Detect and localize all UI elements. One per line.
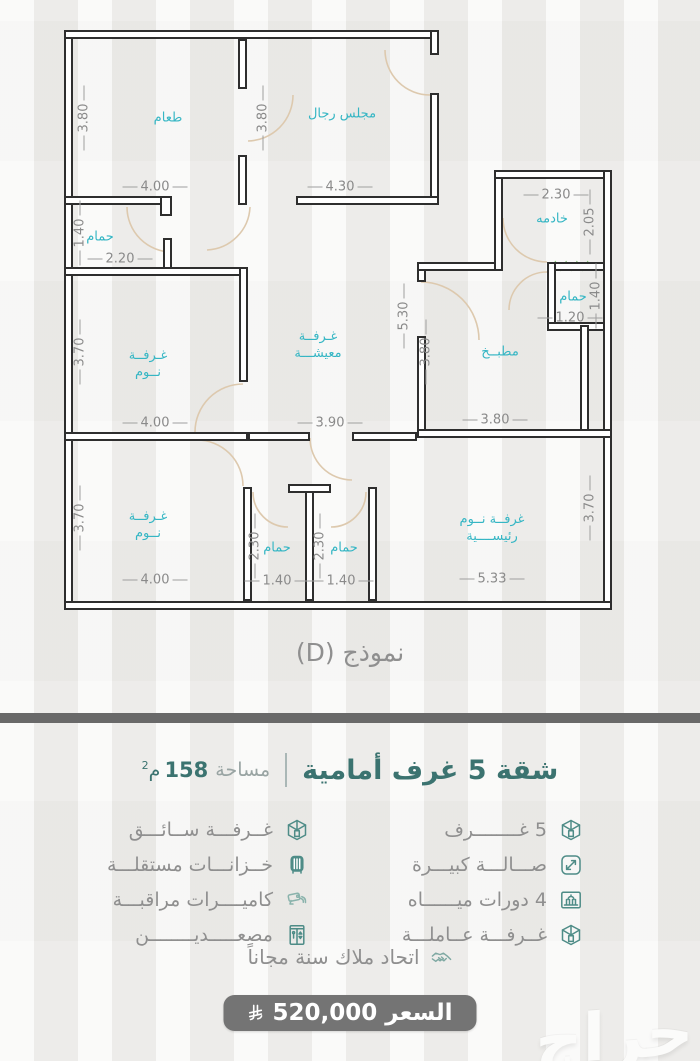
wall [239, 267, 248, 382]
door-arc [310, 438, 352, 480]
wall [64, 30, 439, 39]
tank-icon [285, 853, 309, 877]
door-arc [331, 492, 366, 527]
door-arc [207, 207, 250, 250]
haraj-watermark: حراج [535, 992, 693, 1061]
room-cube-icon [285, 818, 309, 842]
title-separator [285, 753, 287, 787]
wall [603, 170, 612, 610]
room-label: حمام [559, 289, 587, 306]
building-icon [559, 888, 583, 912]
handshake-icon [430, 946, 453, 969]
owners-union-row: اتحاد ملاك سنة مجاناً [0, 945, 700, 969]
price-text: السعر 520,000 [273, 1000, 453, 1026]
listing-title: شقة 5 غرف أمامية [302, 755, 558, 786]
room-label: مطبــخ [481, 344, 519, 361]
room-label: طعام [154, 110, 183, 127]
dimension-label: 3.70 [73, 317, 88, 388]
dimension-label: 5.33 [457, 572, 528, 587]
feature-label: مصعـــــديــــــــن [135, 924, 273, 946]
dimension-label: 5.30 [397, 281, 412, 352]
feature-item: غــرفـــة عــاملـــة [402, 923, 583, 946]
dimension-label: 3.80 [460, 413, 531, 428]
room-label: غـرفــةمعيشـــة [294, 328, 341, 362]
listing-flyer: نموذج (D) طعاممجلس رجالحمامخادمهغـرفــةن… [0, 0, 700, 1061]
wall [494, 170, 503, 271]
wall [352, 432, 417, 441]
feature-item: صـــالـــة كبيـــرة [402, 853, 583, 876]
wall [417, 429, 612, 438]
feature-label: غــرفـــة ســائـــق [129, 819, 273, 841]
feature-label: غــرفـــة عــاملـــة [402, 924, 547, 946]
feature-label: 4 دورات ميــــــاه [408, 889, 547, 911]
wall [160, 196, 172, 216]
room-label: حمام [263, 540, 291, 557]
feature-item: خــزانـــات مستقلـــة [107, 853, 309, 876]
floorplan: نموذج (D) طعاممجلس رجالحمامخادمهغـرفــةن… [0, 0, 700, 713]
room-label: مجلس رجال [308, 106, 376, 123]
wall [430, 30, 439, 55]
info-section: شقة 5 غرف أمامية مساحة 158 م2 5 غـــــــ… [0, 723, 700, 1061]
wall [580, 325, 589, 432]
section-divider-bar [0, 713, 700, 723]
door-arc [509, 272, 547, 310]
dimension-label: 2.30 [521, 188, 592, 203]
room-label: خادمه [536, 211, 568, 228]
dimension-label: 2.30 [313, 511, 328, 582]
elevator-icon [285, 923, 309, 947]
dimension-label: 4.00 [120, 180, 191, 195]
price-badge: السعر 520,000 [224, 995, 477, 1031]
wall [64, 601, 612, 610]
wall [417, 262, 503, 271]
wall [238, 39, 247, 89]
wall [494, 170, 612, 179]
door-arc [195, 384, 243, 432]
riyal-symbol-icon [248, 1004, 264, 1022]
feature-label: 5 غــــــــرف [444, 819, 547, 841]
feature-item: مصعـــــديــــــــن [107, 923, 309, 946]
area-value: 158 [164, 758, 208, 782]
owners-union-note: اتحاد ملاك سنة مجاناً [247, 945, 419, 969]
wall [296, 196, 439, 205]
feature-label: صـــالـــة كبيـــرة [412, 854, 547, 876]
room-label: حمام [330, 540, 358, 557]
feature-label: كاميــــرات مراقبـــة [113, 889, 273, 911]
feature-label: خــزانـــات مستقلـــة [107, 854, 273, 876]
dimension-label: 2.30 [248, 511, 263, 582]
wall [64, 432, 248, 441]
dimension-label: 3.80 [419, 317, 434, 388]
wall [248, 432, 310, 441]
room-label: غرفــة نــومرئيســــية [460, 511, 525, 545]
room-cube-icon [559, 923, 583, 947]
dimension-label: 4.00 [120, 573, 191, 588]
camera-icon [285, 888, 309, 912]
wall [238, 155, 247, 205]
dimension-label: 4.00 [120, 416, 191, 431]
wall [64, 267, 248, 276]
features-column-right: 5 غــــــــرفصـــالـــة كبيـــرة4 دورات … [402, 818, 583, 946]
room-label: حمام [86, 229, 114, 246]
area-label: مساحة [215, 759, 270, 781]
door-arc [197, 440, 243, 486]
wall [288, 484, 331, 493]
plan-caption: نموذج (D) [0, 638, 700, 667]
feature-item: غــرفـــة ســائـــق [107, 818, 309, 841]
dimension-label: 1.20 [535, 311, 606, 326]
room-label: غـرفــةنــوم [129, 508, 168, 542]
dimension-label: 2.20 [85, 252, 156, 267]
feature-item: 5 غــــــــرف [402, 818, 583, 841]
room-cube-icon [559, 818, 583, 842]
feature-item: كاميــــرات مراقبـــة [107, 888, 309, 911]
dimension-label: 3.80 [77, 83, 92, 154]
expand-icon [559, 853, 583, 877]
dimension-label: 3.70 [583, 473, 598, 544]
dimension-label: 3.90 [295, 416, 366, 431]
dimension-label: 1.40 [242, 574, 313, 589]
door-arc [385, 50, 430, 95]
room-label: غـرفــةنــوم [129, 347, 168, 381]
area-unit: م2 [142, 759, 161, 781]
dimension-label: 3.70 [73, 483, 88, 554]
feature-item: 4 دورات ميــــــاه [402, 888, 583, 911]
dimension-label: 2.05 [583, 187, 598, 258]
listing-title-row: شقة 5 غرف أمامية مساحة 158 م2 [0, 753, 700, 787]
wall [430, 93, 439, 205]
dimension-label: 4.30 [305, 180, 376, 195]
features-column-left: غــرفـــة ســائـــقخــزانـــات مستقلـــة… [107, 818, 309, 946]
dimension-label: 3.80 [256, 83, 271, 154]
dimension-label: 1.40 [306, 574, 377, 589]
